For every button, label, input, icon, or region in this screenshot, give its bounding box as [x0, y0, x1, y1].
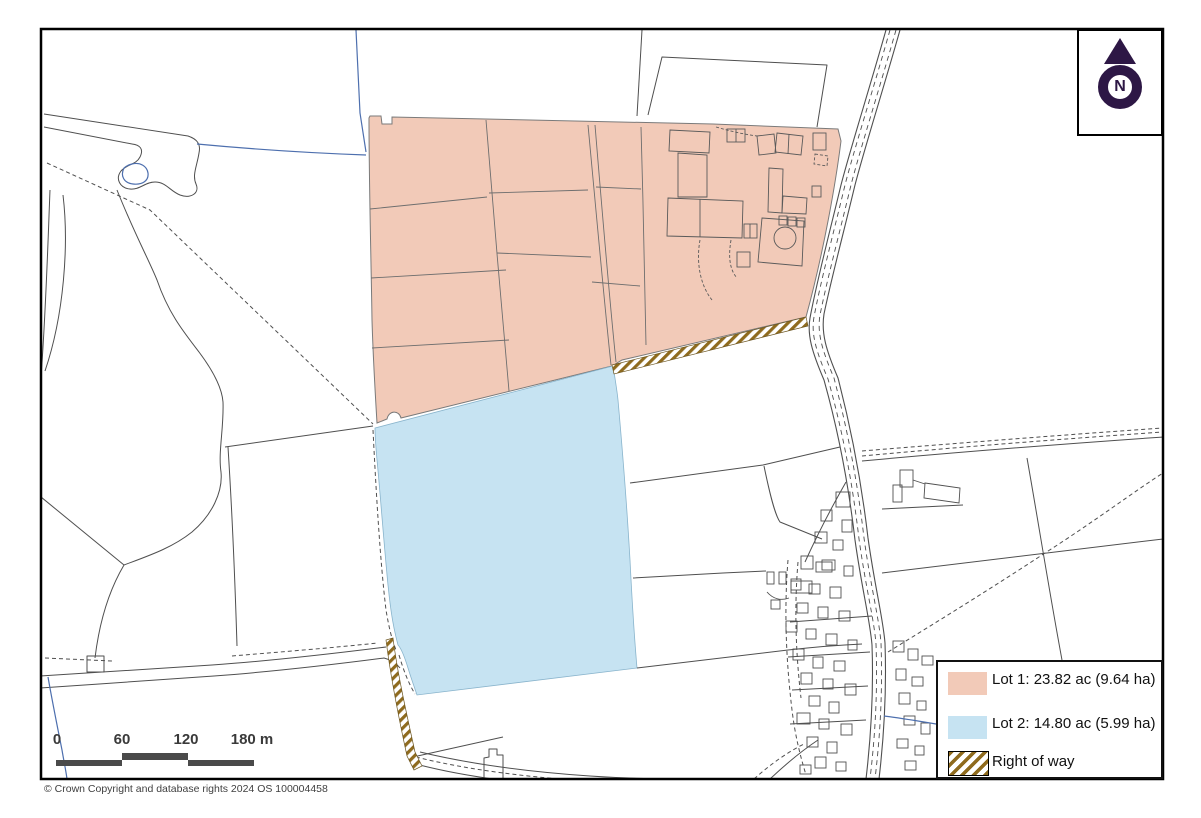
- lot2-area: [375, 366, 637, 695]
- legend-swatch-lot1: [948, 672, 987, 695]
- north-indicator: N: [1077, 29, 1163, 136]
- legend-swatch-lot2: [948, 716, 987, 739]
- north-arrow-icon: [1104, 38, 1136, 64]
- legend-label-right-of-way: Right of way: [992, 753, 1160, 771]
- scale-segment: [122, 753, 188, 760]
- north-ring-icon: N: [1098, 65, 1142, 109]
- scale-segment: [188, 760, 254, 766]
- legend-label-lot1: Lot 1: 23.82 ac (9.64 ha): [992, 671, 1160, 689]
- legend-swatch-right-of-way: [948, 751, 989, 776]
- north-letter: N: [1114, 79, 1126, 95]
- copyright-text: © Crown Copyright and database rights 20…: [44, 783, 328, 795]
- scale-tick-180: 180 m: [231, 731, 274, 748]
- scale-tick-0: 0: [53, 731, 61, 748]
- scale-segment: [56, 760, 122, 766]
- scale-tick-120: 120: [173, 731, 198, 748]
- legend-label-lot2: Lot 2: 14.80 ac (5.99 ha): [992, 715, 1160, 733]
- legend: Lot 1: 23.82 ac (9.64 ha) Lot 2: 14.80 a…: [936, 660, 1163, 779]
- site-plan-page: N Lot 1: 23.82 ac (9.64 ha) Lot 2: 14.80…: [0, 0, 1201, 818]
- scale-tick-60: 60: [114, 731, 131, 748]
